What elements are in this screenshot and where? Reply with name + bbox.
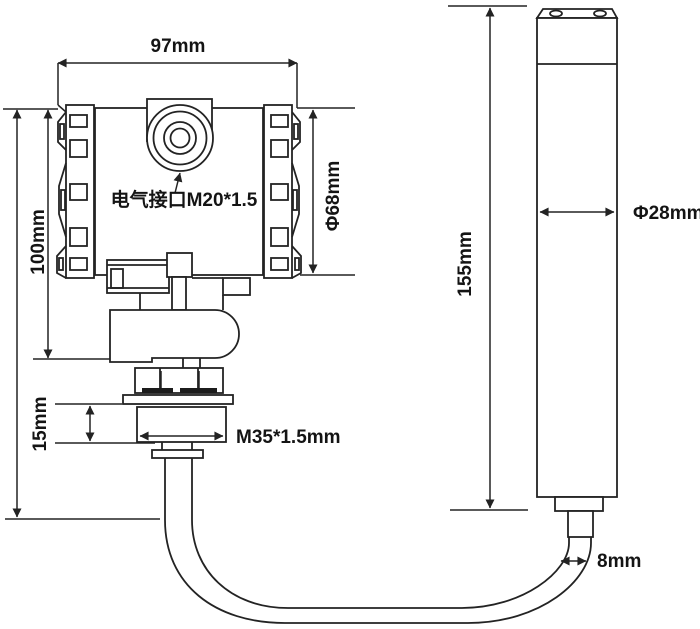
dim-probe-diameter-label: Φ28mm (633, 203, 700, 224)
dim-thread-spec-label: M35*1.5mm (236, 427, 341, 448)
probe (537, 9, 617, 537)
probe-cable-neck (568, 511, 593, 537)
gasket-mark-right (180, 388, 217, 393)
gasket-mark-left (142, 388, 173, 393)
dim-cable-diameter-label: 8mm (597, 551, 641, 572)
dim-head-diameter: Φ68mm (297, 108, 355, 275)
head-fins-right (264, 105, 301, 278)
hex-nut (135, 368, 223, 393)
cable-tube (165, 458, 192, 520)
process-housing (110, 310, 239, 362)
cable-gland-collar (152, 450, 203, 458)
electrical-entry-port (147, 99, 213, 171)
dim-probe-length-label: 155mm (455, 231, 476, 297)
probe-top-face (537, 9, 617, 18)
head-fins-left (57, 105, 94, 278)
diagram-canvas: 97mm 100mm Φ68mm 电气接口M20*1.5 (0, 0, 700, 629)
probe-bottom-collar (555, 497, 603, 511)
cable (165, 520, 591, 623)
probe-body (537, 18, 617, 497)
dim-cable-diameter: 8mm (561, 551, 641, 572)
dim-head-width-label: 97mm (151, 36, 206, 57)
dim-probe-length: 155mm (448, 6, 528, 510)
transmitter-head (57, 99, 301, 520)
dim-head-height-label: 100mm (28, 209, 49, 275)
dim-thread-height-label: 15mm (30, 397, 51, 452)
dim-head-diameter-label: Φ68mm (323, 161, 344, 232)
level-transmitter-dimension-diagram: 97mm 100mm Φ68mm 电气接口M20*1.5 (0, 0, 700, 629)
callout-electrical-port-label: 电气接口M20*1.5 (111, 188, 258, 211)
mounting-flange (123, 395, 233, 404)
